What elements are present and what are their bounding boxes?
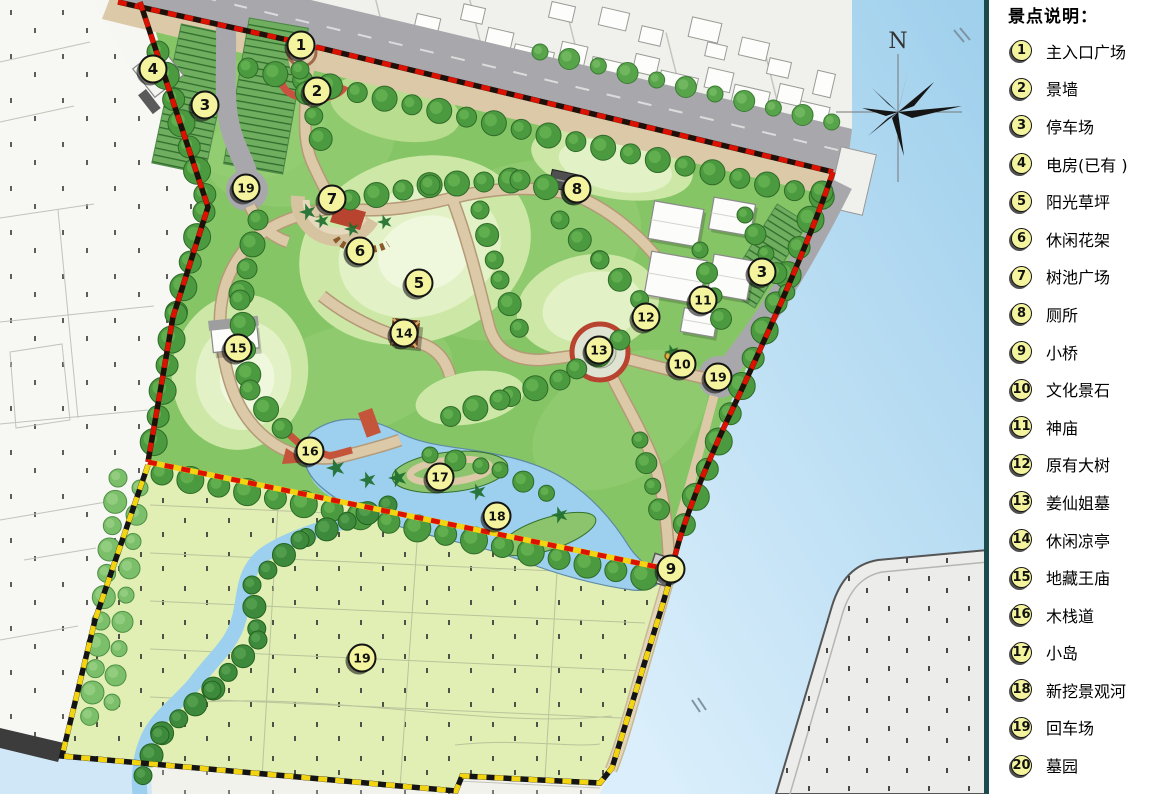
- compass-north-label: N: [888, 29, 907, 54]
- legend-item-label: 文化景石: [1046, 377, 1110, 401]
- legend-item-label: 树池广场: [1046, 264, 1110, 288]
- legend-item-label: 原有大树: [1046, 452, 1110, 476]
- legend-item: 6休闲花架: [1011, 220, 1128, 258]
- legend-item: 20墓园: [1011, 746, 1128, 784]
- legend-item-number-badge: 4: [1011, 153, 1032, 174]
- legend-item: 10文化景石: [1011, 370, 1128, 408]
- legend-item: 15地藏王庙: [1011, 558, 1128, 596]
- map-marker-number: 19: [353, 651, 370, 666]
- legend-item-number-badge: 19: [1011, 717, 1032, 738]
- legend-item-label: 神庙: [1046, 415, 1078, 439]
- legend-item-label: 回车场: [1046, 715, 1094, 739]
- legend-item-number-badge: 13: [1011, 491, 1032, 512]
- legend-item-label: 新挖景观河: [1046, 678, 1126, 702]
- legend-item-label: 停车场: [1046, 114, 1094, 138]
- legend-item-number-badge: 10: [1011, 379, 1032, 400]
- legend-item-label: 墓园: [1046, 753, 1078, 777]
- legend-item-number-badge: 11: [1011, 416, 1032, 437]
- legend-item-number-badge: 16: [1011, 604, 1032, 625]
- legend-item-number-badge: 14: [1011, 529, 1032, 550]
- map-marker-number: 3: [200, 96, 210, 114]
- map-marker-number: 11: [694, 293, 711, 308]
- legend-panel: 景点说明： 1主入口广场2景墙3停车场4电房(已有 )5阳光草坪6休闲花架7树池…: [989, 0, 1168, 794]
- map-marker-number: 14: [395, 326, 413, 341]
- legend-item-number-badge: 9: [1011, 341, 1032, 362]
- legend-item-label: 厕所: [1046, 302, 1078, 326]
- legend-item: 13姜仙姐墓: [1011, 483, 1128, 521]
- legend-item-label: 小岛: [1046, 640, 1078, 664]
- legend-item: 18新挖景观河: [1011, 671, 1128, 709]
- legend-item-number-badge: 7: [1011, 266, 1032, 287]
- legend-item-number-badge: 12: [1011, 454, 1032, 475]
- legend-item-label: 小桥: [1046, 340, 1078, 364]
- legend-items-list: 1主入口广场2景墙3停车场4电房(已有 )5阳光草坪6休闲花架7树池广场8厕所9…: [1011, 32, 1128, 784]
- legend-item-label: 地藏王庙: [1046, 565, 1110, 589]
- legend-item-label: 姜仙姐墓: [1046, 490, 1110, 514]
- legend-item-number-badge: 20: [1011, 755, 1032, 776]
- map-marker-number: 18: [488, 509, 505, 524]
- map-marker-number: 17: [431, 470, 448, 485]
- map-marker-number: 12: [637, 310, 654, 325]
- legend-item: 8厕所: [1011, 295, 1128, 333]
- legend-item-number-badge: 5: [1011, 191, 1032, 212]
- map-marker-number: 3: [757, 263, 767, 281]
- map-marker-number: 6: [355, 242, 365, 260]
- map-marker-number: 10: [673, 357, 691, 372]
- legend-item: 9小桥: [1011, 333, 1128, 371]
- map-canvas: N1234197865311121413101915161718919: [0, 0, 988, 794]
- legend-item-label: 电房(已有 ): [1046, 152, 1128, 176]
- legend-item: 5阳光草坪: [1011, 182, 1128, 220]
- map-marker-number: 16: [301, 444, 319, 459]
- legend-item: 4电房(已有 ): [1011, 145, 1128, 183]
- legend-item: 2景墙: [1011, 70, 1128, 108]
- legend-item: 1主入口广场: [1011, 32, 1128, 70]
- legend-item-label: 阳光草坪: [1046, 189, 1110, 213]
- map-marker-number: 7: [327, 190, 337, 208]
- legend-item-number-badge: 17: [1011, 642, 1032, 663]
- map-marker-number: 19: [709, 370, 726, 385]
- map-marker-number: 1: [296, 36, 306, 54]
- map-marker-number: 4: [148, 60, 158, 78]
- park-master-plan-map: N1234197865311121413101915161718919: [0, 0, 988, 794]
- map-marker-number: 15: [229, 341, 246, 356]
- legend-item: 14休闲凉亭: [1011, 521, 1128, 559]
- map-marker-number: 13: [590, 343, 607, 358]
- legend-item-number-badge: 18: [1011, 679, 1032, 700]
- map-marker-number: 8: [572, 180, 582, 198]
- map-marker-number: 19: [237, 181, 254, 196]
- legend-item: 11神庙: [1011, 408, 1128, 446]
- map-marker-number: 2: [312, 82, 322, 100]
- legend-item-number-badge: 3: [1011, 115, 1032, 136]
- legend-item: 12原有大树: [1011, 446, 1128, 484]
- legend-item: 3停车场: [1011, 107, 1128, 145]
- legend-item-number-badge: 6: [1011, 228, 1032, 249]
- legend-item-number-badge: 1: [1011, 40, 1032, 61]
- site-plan-page: N1234197865311121413101915161718919 景点说明…: [0, 0, 1168, 794]
- legend-item-label: 休闲花架: [1046, 227, 1110, 251]
- legend-item-label: 景墙: [1046, 76, 1078, 100]
- legend-item-number-badge: 15: [1011, 567, 1032, 588]
- legend-item-label: 休闲凉亭: [1046, 528, 1110, 552]
- legend-item: 17小岛: [1011, 634, 1128, 672]
- legend-item: 7树池广场: [1011, 258, 1128, 296]
- map-marker-number: 5: [414, 274, 424, 292]
- legend-item-label: 木栈道: [1046, 603, 1094, 627]
- legend-item-number-badge: 8: [1011, 303, 1032, 324]
- legend-item: 19回车场: [1011, 709, 1128, 747]
- legend-title: 景点说明：: [1008, 2, 1098, 27]
- legend-item: 16木栈道: [1011, 596, 1128, 634]
- legend-item-number-badge: 2: [1011, 78, 1032, 99]
- legend-item-label: 主入口广场: [1046, 39, 1126, 63]
- map-marker-number: 9: [666, 560, 676, 578]
